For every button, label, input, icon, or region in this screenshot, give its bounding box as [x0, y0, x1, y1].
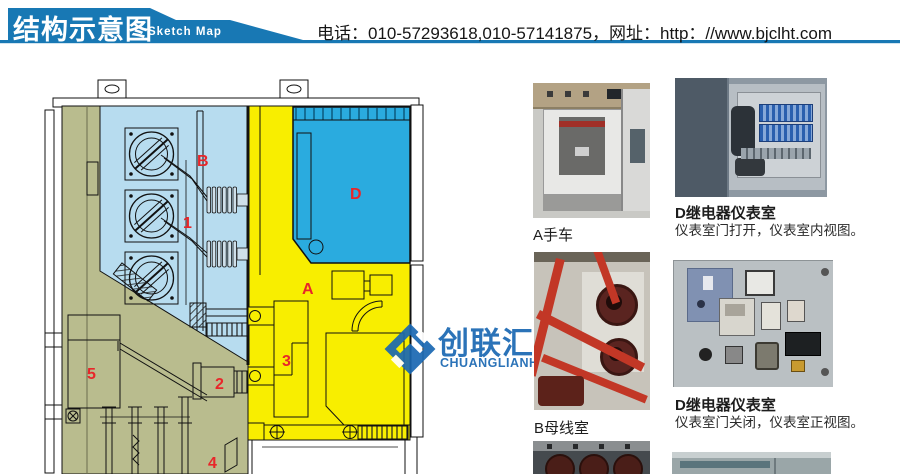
mimic-symbol [703, 276, 713, 290]
control-switch [725, 346, 743, 364]
relay-detail [725, 304, 745, 316]
strip-dot [573, 444, 578, 449]
busbar-support [538, 376, 584, 406]
strip-dot [547, 444, 552, 449]
diagram-label-1: 1 [183, 215, 192, 232]
company-logo-icon [383, 322, 437, 376]
photo-b-busbar [534, 252, 650, 410]
caption-photo-d2-sub: 仪表室门关闭，仪表室正视图。 [675, 411, 864, 431]
photo-d-relay-closed [673, 260, 833, 387]
terminal-block [759, 104, 813, 122]
display-window [785, 332, 821, 356]
diagram-label-3: 3 [282, 353, 291, 370]
page-title: 结构示意图 [13, 8, 153, 47]
control-knob [699, 348, 712, 361]
key-connector [755, 342, 779, 370]
vent-grille [293, 107, 410, 120]
photo-partial-panel [672, 452, 831, 474]
mimic-symbol [697, 300, 705, 308]
bushing-ring [613, 454, 643, 474]
diagram-label-D: D [350, 186, 362, 203]
panel-screw [821, 368, 829, 376]
caption-photo-b: B母线室 [534, 417, 589, 438]
page: 结构示意图 Sketch Map 电话：010-57293618,010-571… [0, 0, 900, 474]
cabinet-indicator [547, 91, 553, 97]
header-contact: 电话：010-57293618,010-57141875，网址：http：//w… [317, 19, 832, 44]
meter [745, 270, 775, 296]
caption-photo-a: A手车 [533, 224, 573, 245]
panel-screw [821, 268, 829, 276]
photo-a-handcart [533, 83, 650, 218]
panel-bar [680, 461, 770, 468]
structure-diagram: B 1 D A 3 2 5 4 [40, 75, 435, 474]
panel-edge [672, 452, 831, 458]
bushing-ring [545, 454, 575, 474]
breaker-band [559, 121, 605, 127]
caption-photo-d1-sub: 仪表室门打开，仪表室内视图。 [675, 219, 864, 239]
panel-seam [774, 458, 776, 474]
terminal-strip [741, 148, 811, 159]
breaker-label [575, 147, 589, 156]
indicator-lamp [791, 360, 805, 372]
cabinet-base [543, 195, 621, 211]
small-meter [761, 302, 781, 330]
page-subtitle: Sketch Map [148, 26, 222, 38]
cabinet-indicator [583, 91, 589, 97]
small-meter [787, 300, 805, 322]
cabinet-indicator [565, 91, 571, 97]
photo-partial-bushings [533, 441, 650, 474]
diagram-label-2: 2 [215, 376, 224, 393]
photo-d-relay-open [675, 78, 827, 197]
diagram-label-A: A [302, 281, 314, 298]
compartment-door [675, 78, 729, 197]
terminal-block [759, 124, 813, 142]
diagram-label-4: 4 [208, 455, 217, 472]
strip-dot [625, 444, 630, 449]
strip-dot [599, 444, 604, 449]
photo-top-band [534, 252, 650, 262]
diagram-label-5: 5 [87, 366, 96, 383]
bushing-ring [579, 454, 609, 474]
door-window [630, 129, 645, 163]
diagram-label-B: B [197, 153, 209, 170]
wiring-harness [735, 158, 765, 176]
